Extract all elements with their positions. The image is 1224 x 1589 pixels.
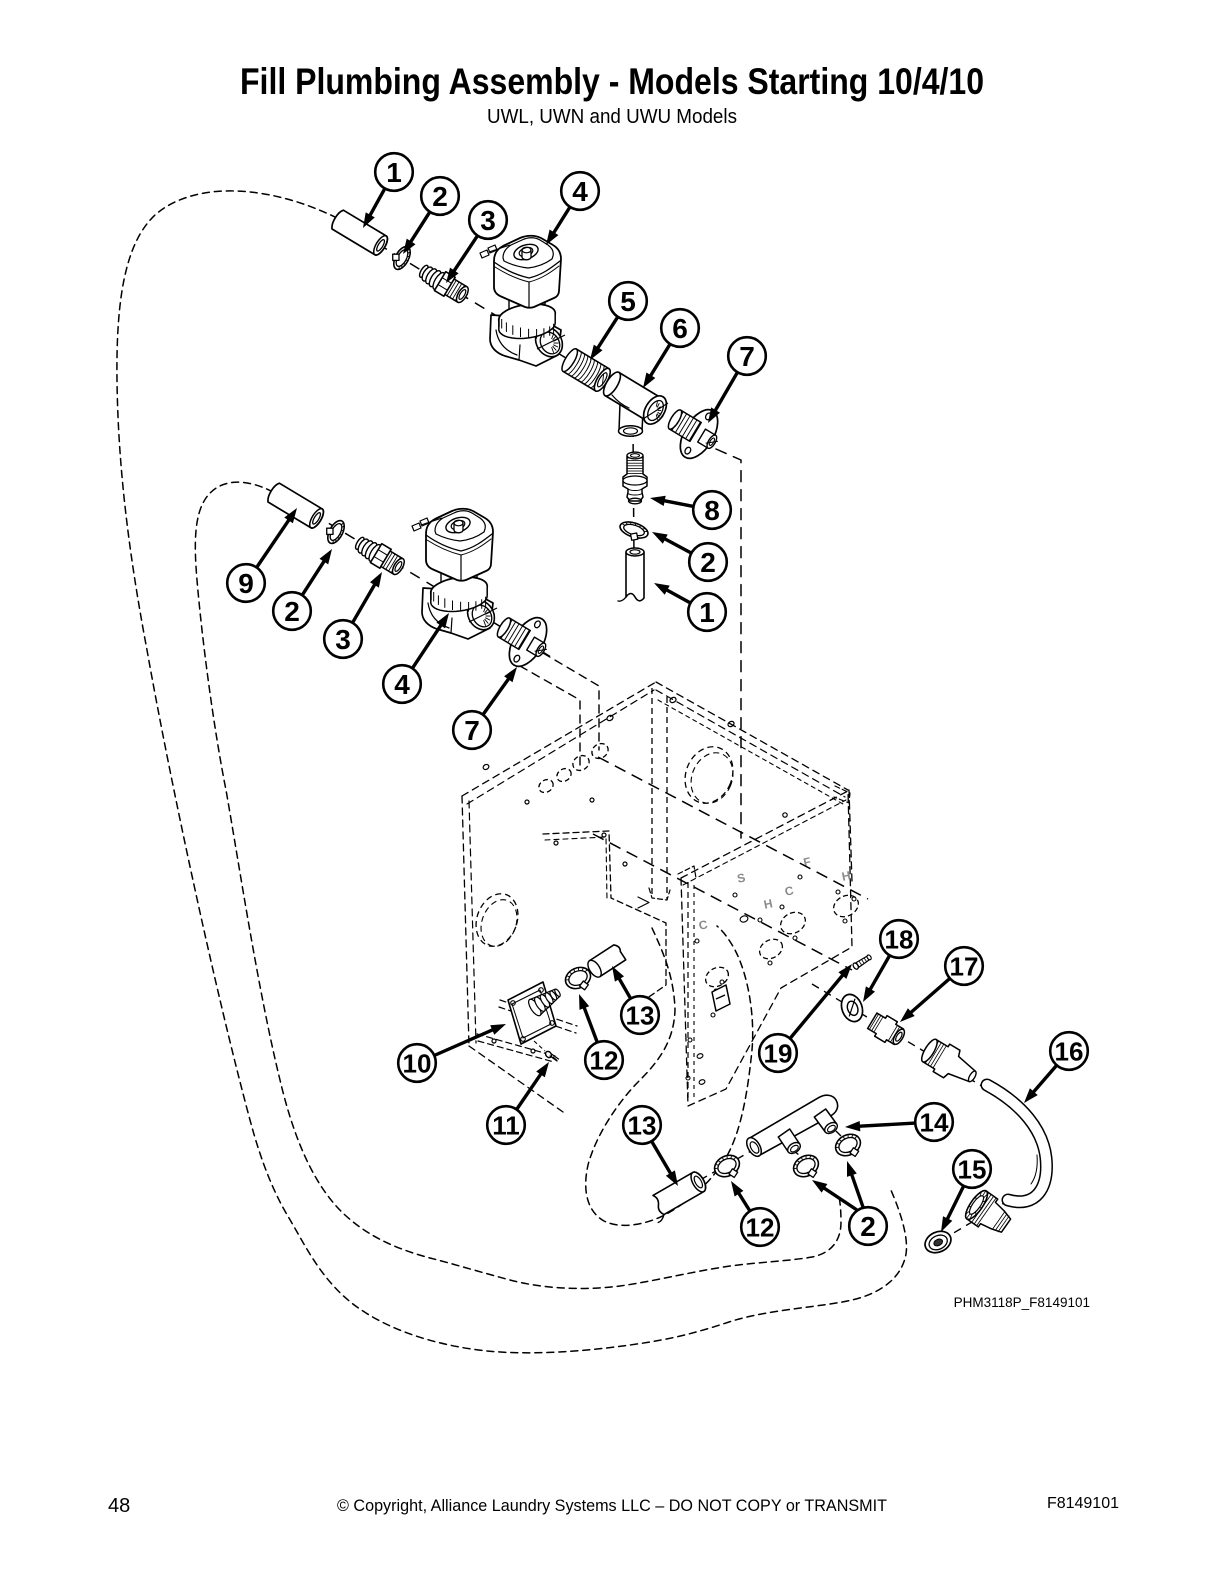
svg-text:12: 12 (590, 1045, 619, 1075)
svg-text:2: 2 (432, 181, 448, 212)
svg-text:15: 15 (958, 1154, 987, 1184)
svg-text:PHM3118P_F8149101: PHM3118P_F8149101 (954, 1295, 1090, 1310)
svg-text:13: 13 (628, 1110, 657, 1140)
svg-text:12: 12 (746, 1212, 775, 1242)
svg-text:9: 9 (238, 568, 254, 599)
svg-text:4: 4 (394, 669, 410, 700)
svg-text:3: 3 (480, 205, 496, 236)
svg-text:2: 2 (284, 596, 300, 627)
svg-text:© Copyright, Alliance Laundry: © Copyright, Alliance Laundry Systems LL… (337, 1496, 887, 1515)
svg-text:7: 7 (739, 341, 755, 372)
svg-text:17: 17 (950, 951, 979, 981)
svg-text:10: 10 (403, 1048, 432, 1078)
svg-text:3: 3 (335, 624, 351, 655)
svg-text:UWL, UWN and UWU Models: UWL, UWN and UWU Models (487, 106, 737, 128)
svg-text:Fill Plumbing Assembly - Model: Fill Plumbing Assembly - Models Starting… (240, 61, 984, 102)
svg-text:11: 11 (492, 1110, 520, 1140)
svg-text:5: 5 (620, 286, 636, 317)
svg-text:2: 2 (860, 1211, 876, 1242)
svg-text:1: 1 (386, 157, 402, 188)
svg-text:2: 2 (700, 547, 716, 578)
svg-text:48: 48 (108, 1495, 130, 1517)
svg-text:16: 16 (1055, 1036, 1084, 1066)
svg-text:19: 19 (764, 1038, 793, 1068)
svg-text:18: 18 (885, 924, 914, 954)
svg-text:6: 6 (672, 313, 688, 344)
svg-text:14: 14 (920, 1107, 949, 1137)
svg-text:7: 7 (464, 715, 480, 746)
svg-text:1: 1 (699, 597, 715, 628)
svg-text:8: 8 (704, 495, 720, 526)
svg-text:13: 13 (626, 1000, 655, 1030)
svg-text:F8149101: F8149101 (1047, 1495, 1119, 1512)
svg-text:4: 4 (572, 176, 588, 207)
